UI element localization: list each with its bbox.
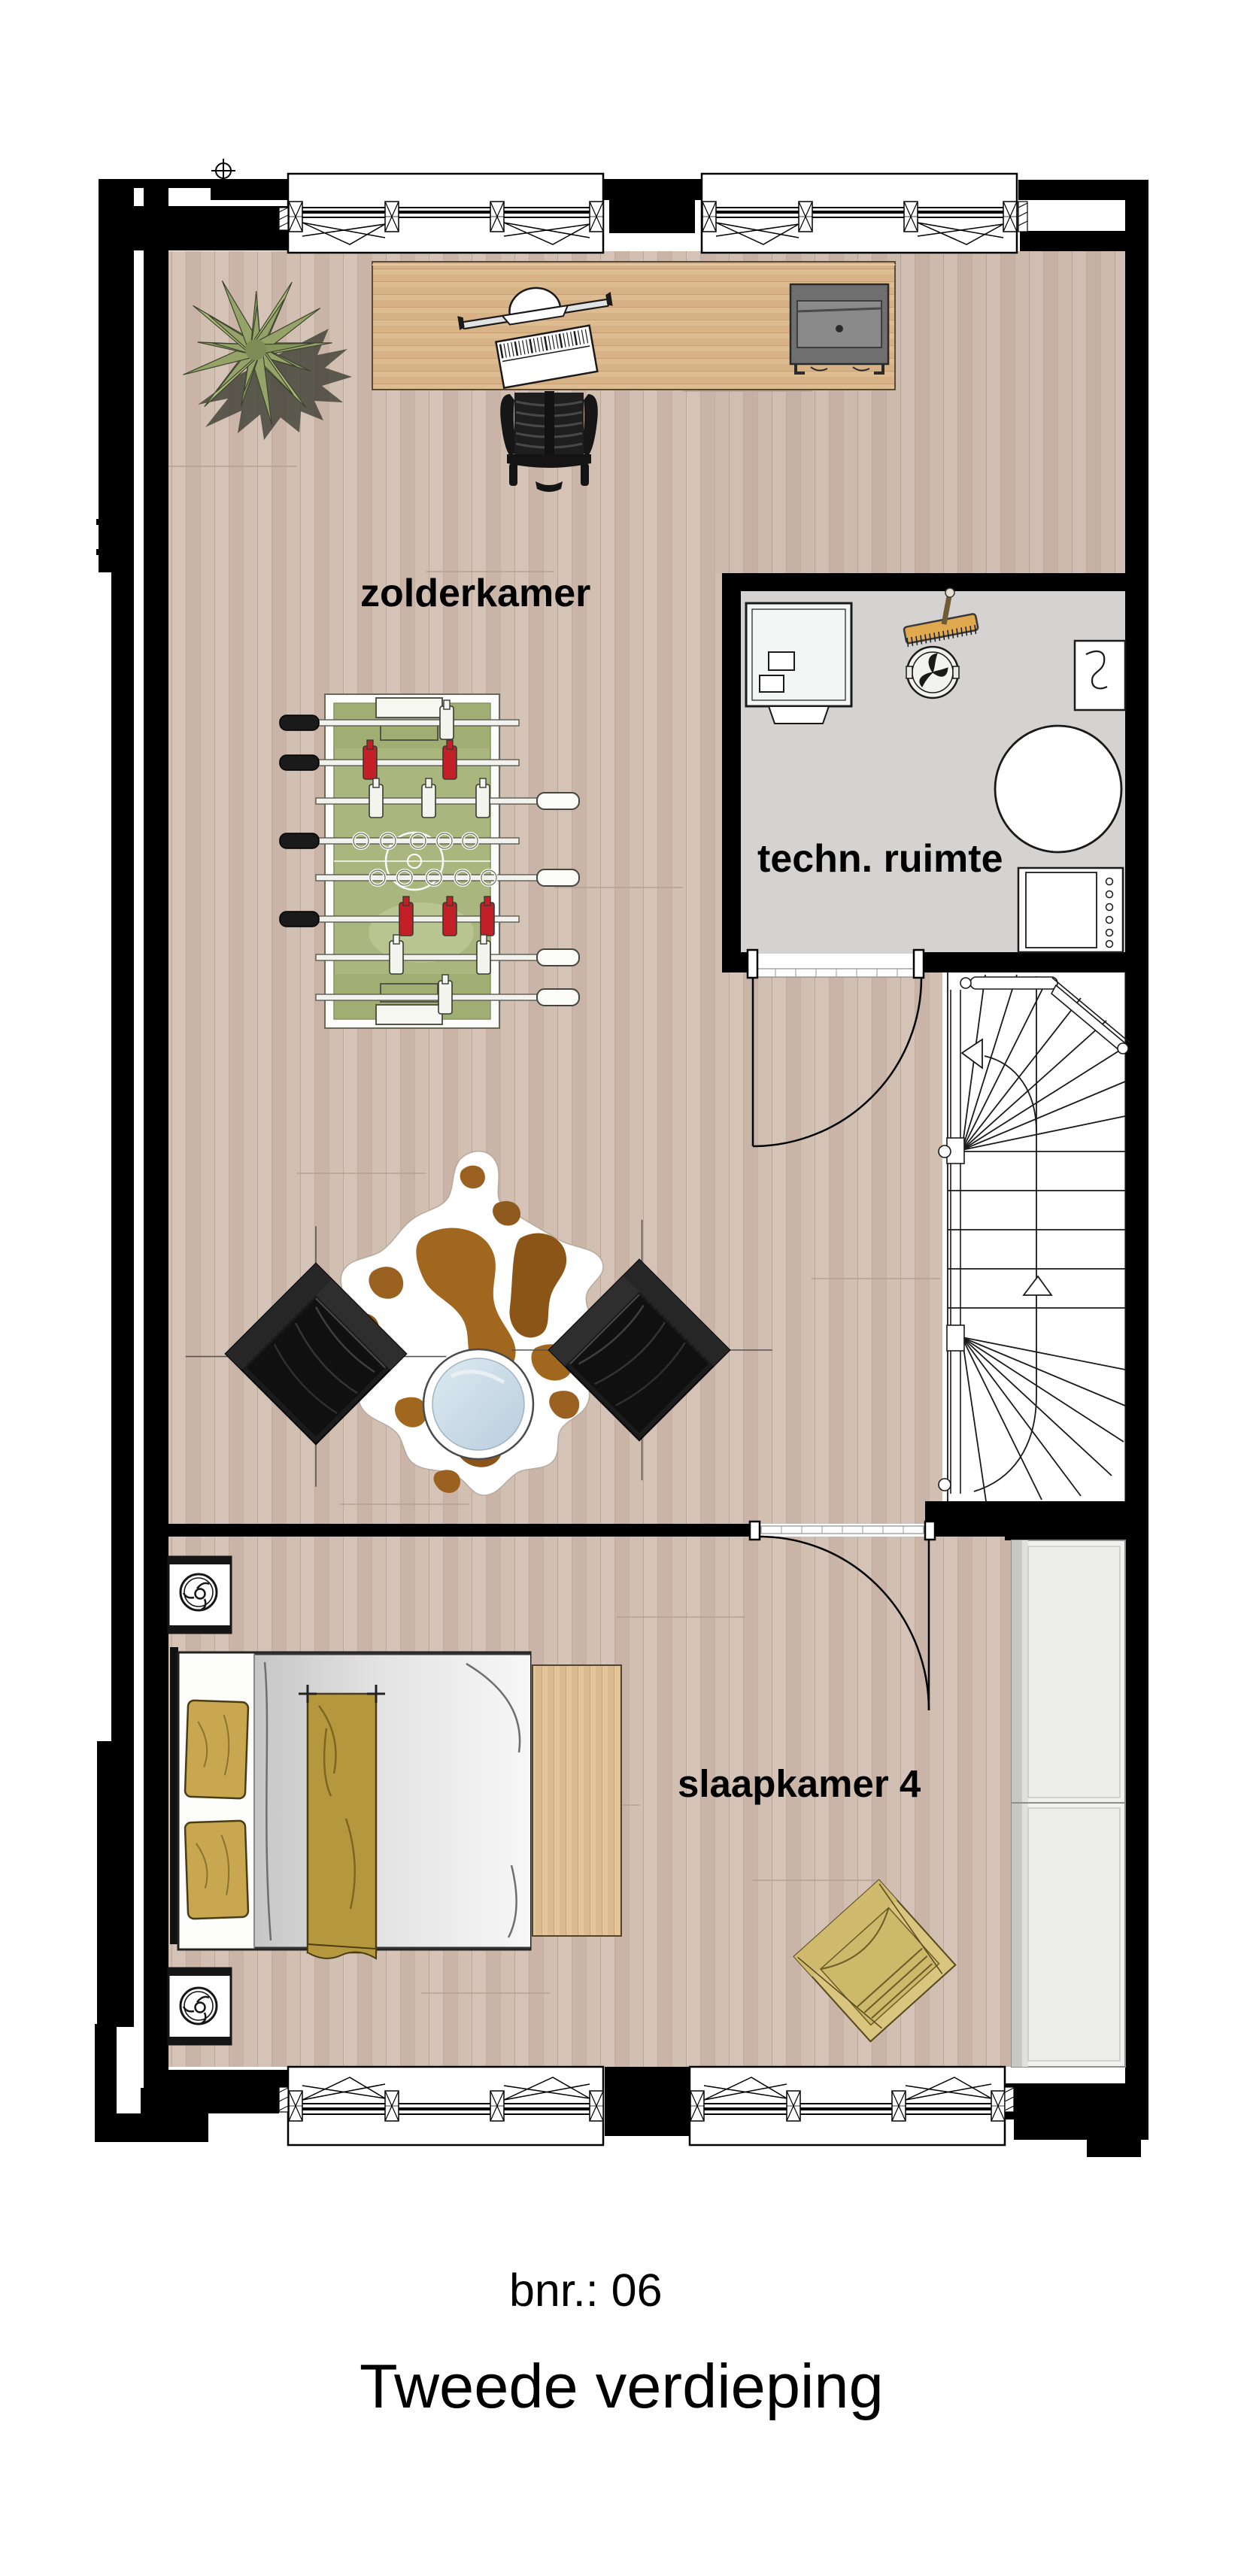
svg-text:bnr.: 06: bnr.: 06 — [509, 2265, 663, 2316]
svg-text:techn. ruimte: techn. ruimte — [757, 837, 1003, 881]
svg-text:zolderkamer: zolderkamer — [360, 572, 590, 615]
svg-text:Tweede verdieping: Tweede verdieping — [360, 2351, 884, 2421]
svg-text:slaapkamer 4: slaapkamer 4 — [678, 1762, 921, 1805]
